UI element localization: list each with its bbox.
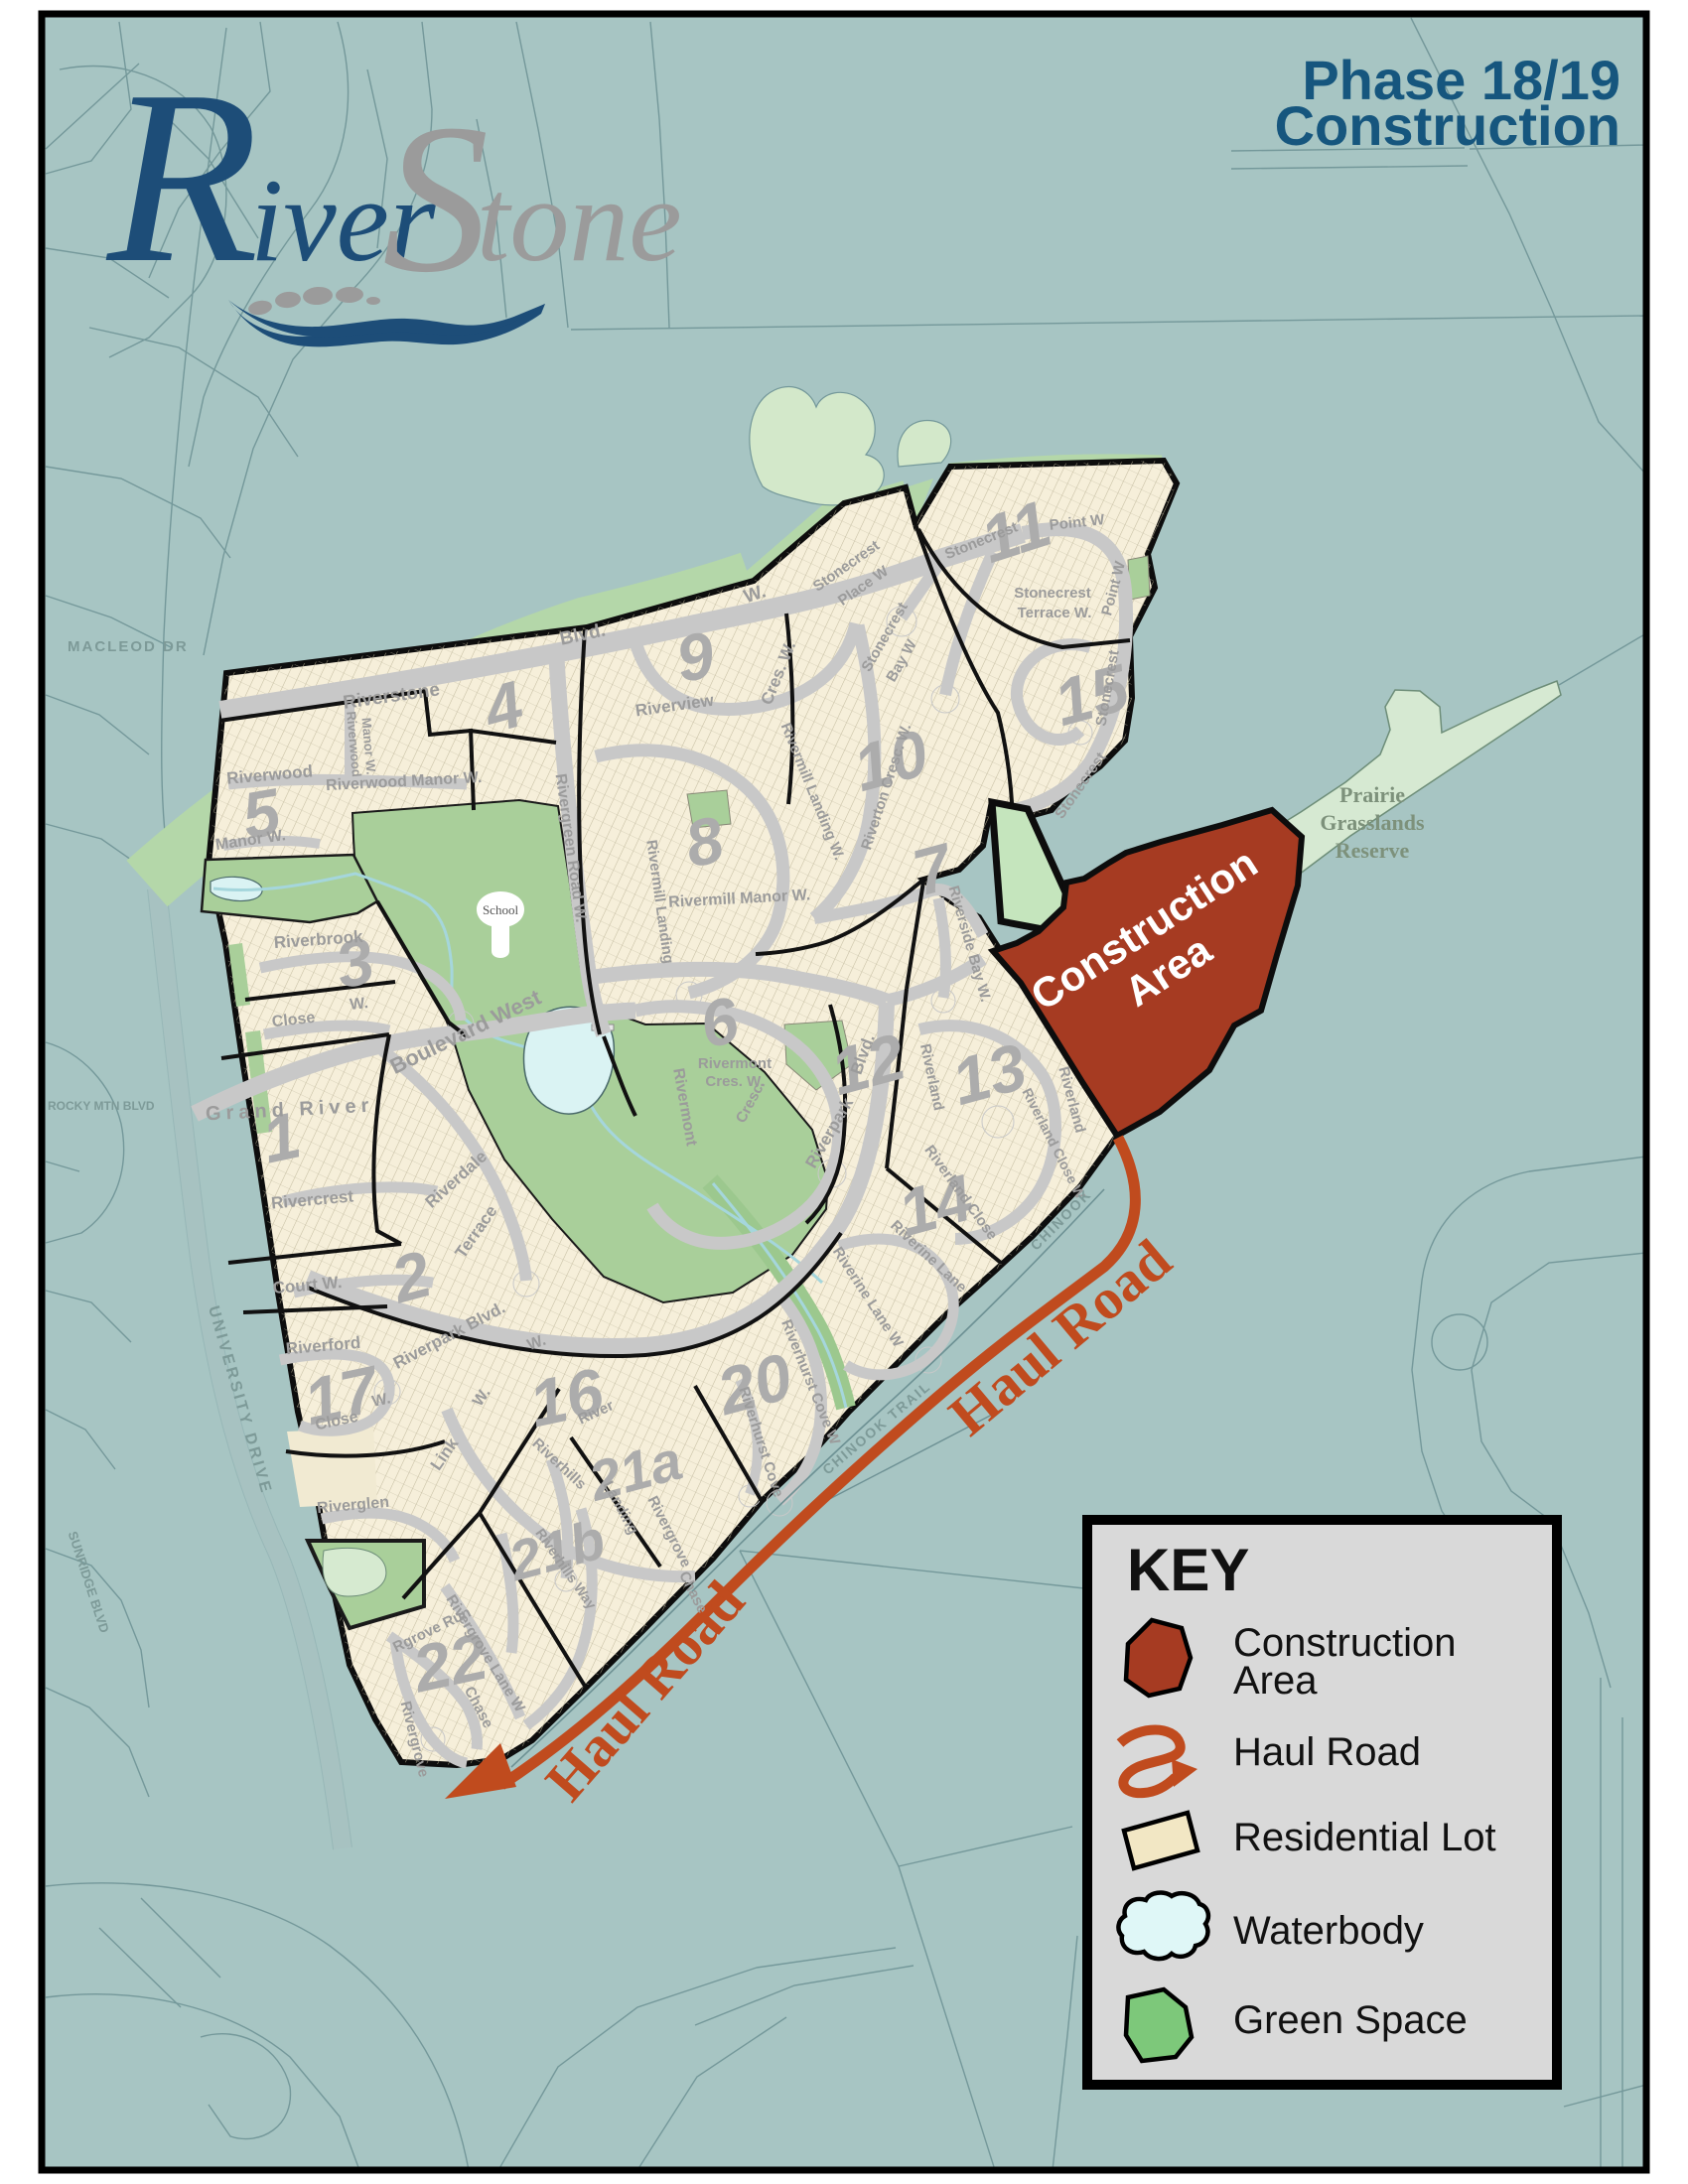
svg-text:Green Space: Green Space [1233,1998,1468,2042]
svg-text:KEY: KEY [1127,1537,1249,1603]
svg-text:Cres. W.: Cres. W. [705,1073,764,1090]
svg-text:W.: W. [349,995,368,1014]
svg-text:Waterbody: Waterbody [1233,1909,1424,1953]
svg-text:Residential Lot: Residential Lot [1233,1816,1496,1859]
svg-text:Reserve: Reserve [1336,838,1410,863]
svg-text:S: S [382,79,490,317]
svg-text:tone: tone [477,154,682,286]
svg-text:MACLEOD DR: MACLEOD DR [68,638,189,655]
svg-text:Stonecrest: Stonecrest [1014,585,1091,602]
svg-text:R: R [105,40,259,315]
svg-text:Prairie: Prairie [1339,782,1405,807]
svg-text:Construction: Construction [1275,94,1620,157]
svg-text:School: School [483,902,519,917]
svg-text:Area: Area [1233,1659,1318,1703]
svg-text:Terrace W.: Terrace W. [1018,605,1092,621]
svg-text:Rivermont: Rivermont [698,1055,772,1072]
svg-text:ROCKY MTN BLVD: ROCKY MTN BLVD [48,1099,155,1113]
svg-text:Haul Road: Haul Road [1233,1730,1421,1774]
svg-text:Grasslands: Grasslands [1320,810,1425,835]
